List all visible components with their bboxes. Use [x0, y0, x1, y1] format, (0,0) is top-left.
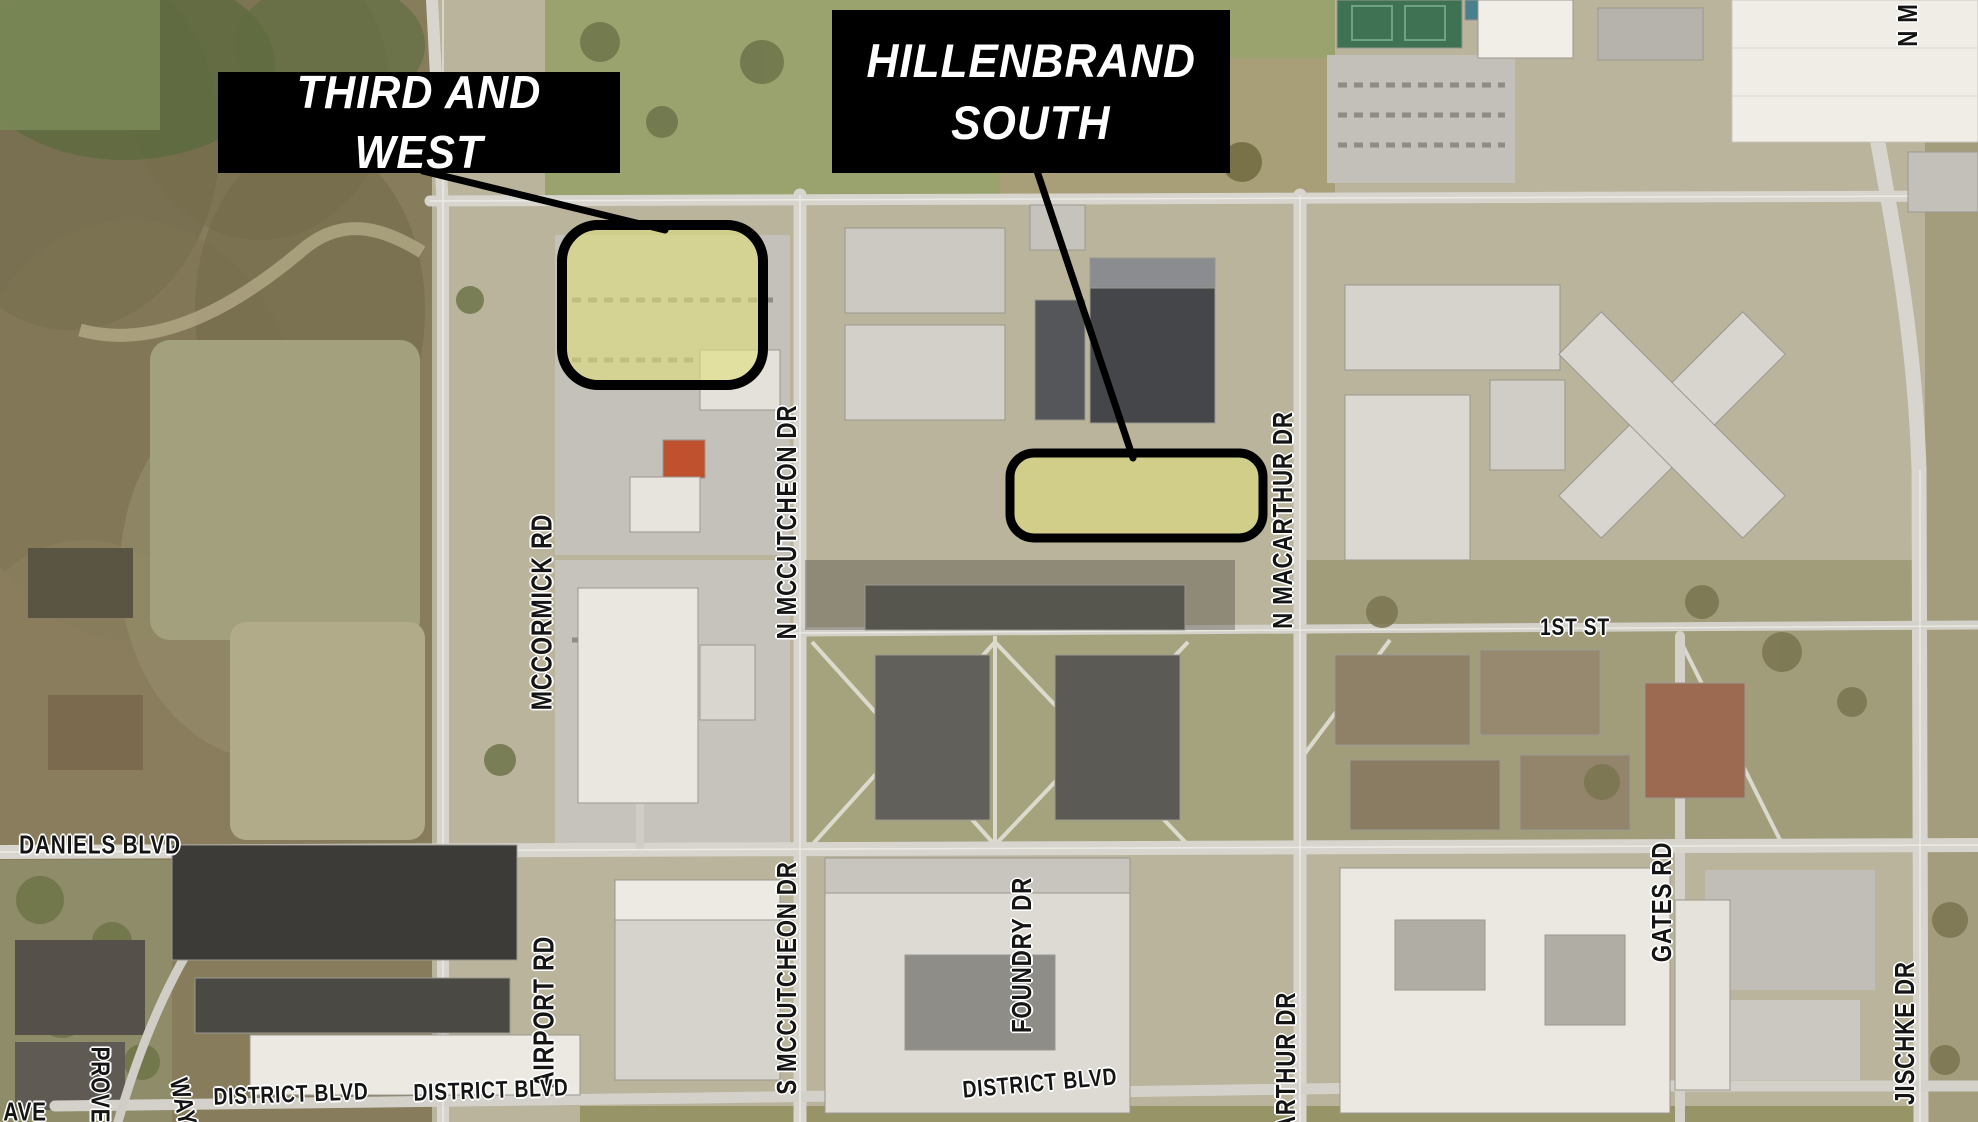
leader-line-hillenbrand-south: [1037, 171, 1133, 458]
callout-third-and-west[interactable]: THIRD AND WEST: [218, 72, 620, 173]
callout-hillenbrand-south[interactable]: HILLENBRAND SOUTH: [832, 10, 1230, 173]
callout-hillenbrand-south-text-line2: SOUTH: [951, 92, 1110, 153]
highlight-zone-hillenbrand-south[interactable]: [1010, 453, 1263, 538]
campus-aerial-map: MCCORMICK RDAIRPORT RDN MCCUTCHEON DRS M…: [0, 0, 1978, 1122]
callout-hillenbrand-south-text-line1: HILLENBRAND: [866, 30, 1195, 91]
highlight-zone-third-and-west[interactable]: [562, 225, 763, 385]
callout-third-and-west-text: THIRD AND WEST: [230, 63, 608, 183]
